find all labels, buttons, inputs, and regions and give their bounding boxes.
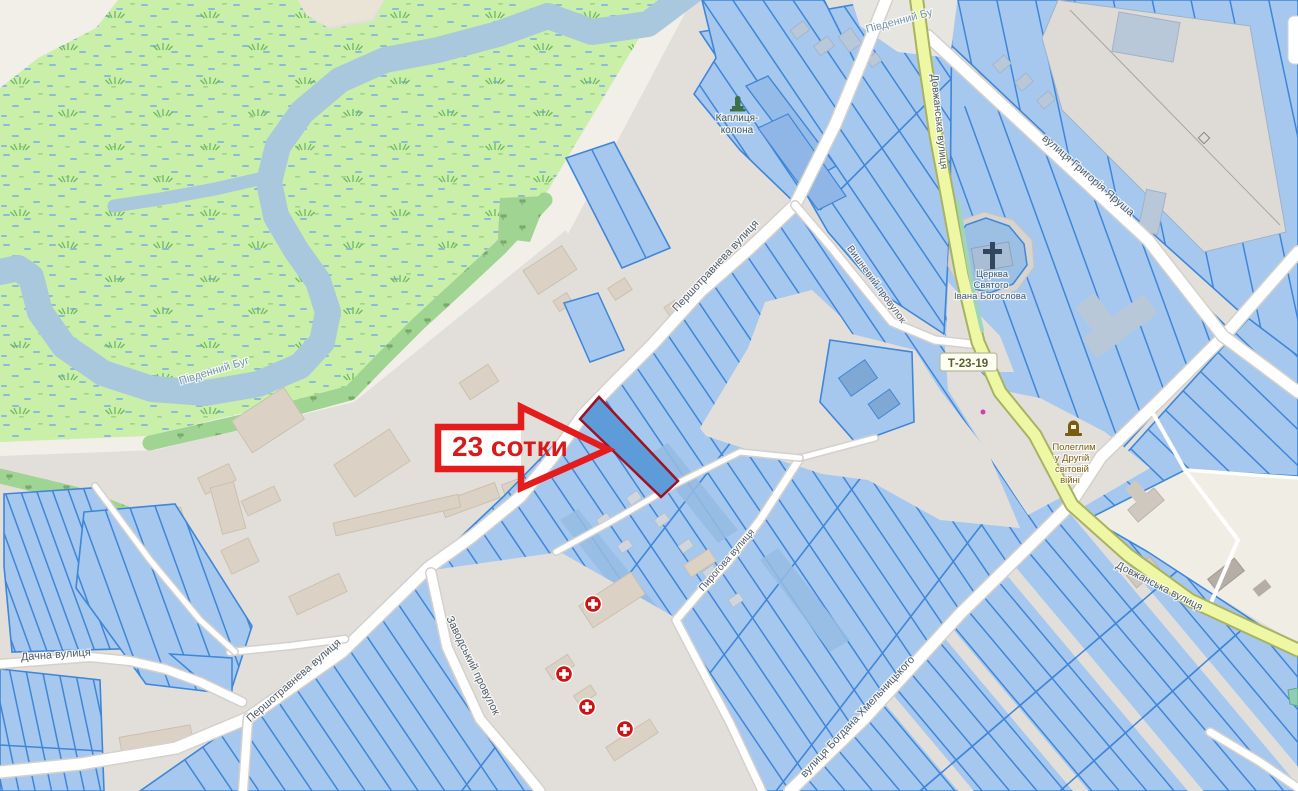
svg-text:Церква: Церква — [976, 269, 1009, 280]
svg-text:світовій: світовій — [1055, 464, 1089, 475]
svg-text:Полеглим: Полеглим — [1052, 442, 1095, 453]
svg-text:23 сотки: 23 сотки — [452, 431, 568, 462]
svg-text:Святого: Святого — [973, 280, 1008, 291]
svg-text:війні: війні — [1060, 475, 1080, 486]
svg-text:у Другій: у Другій — [1055, 453, 1090, 464]
svg-text:колона: колона — [721, 125, 754, 136]
svg-text:Івана Богослова: Івана Богослова — [954, 291, 1027, 302]
svg-text:Т-23-19: Т-23-19 — [948, 358, 988, 370]
svg-text:Каплиця-: Каплиця- — [716, 113, 759, 124]
